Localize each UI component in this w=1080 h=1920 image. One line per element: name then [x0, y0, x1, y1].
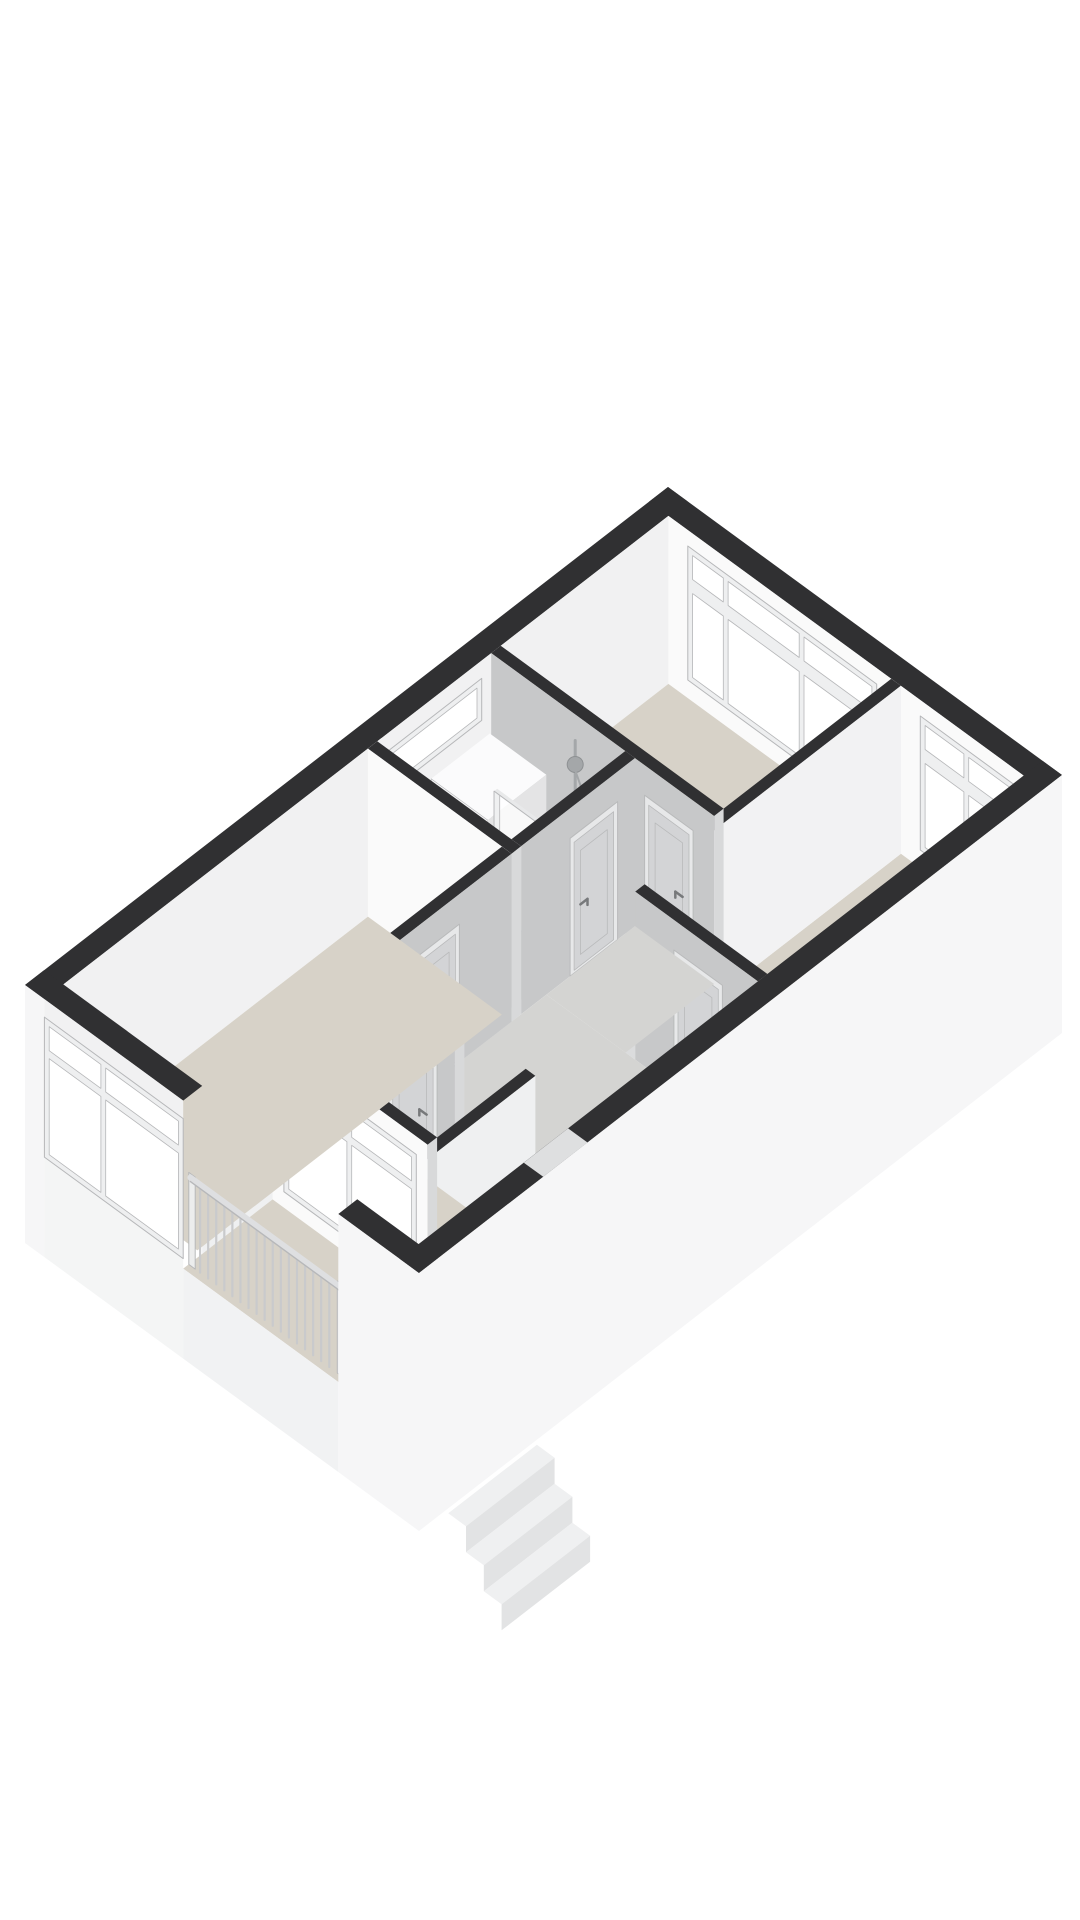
- floorplan-3d-render: [0, 0, 1080, 1920]
- bathroom-south-wall-cap: [512, 846, 521, 1021]
- floorplan-3d-view: [0, 0, 1080, 1920]
- sw-corner-block: [25, 985, 44, 1257]
- balcony-rail-panel-left: [189, 1172, 195, 1269]
